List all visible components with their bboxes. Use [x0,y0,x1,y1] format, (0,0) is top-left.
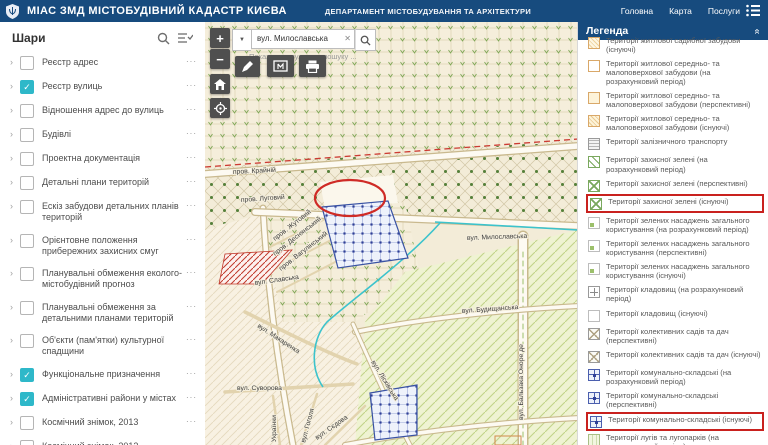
legend-row: Території комунально-складські (на розра… [586,365,764,388]
layer-label: Реєстр вулиць [42,80,186,92]
expand-chevron-icon[interactable]: › [10,234,18,247]
layer-row[interactable]: › Космічний знімок, 2012 ··· [0,435,205,445]
legend-label: Території кладовищ (існуючі) [606,309,708,318]
layer-row[interactable]: › Будівлі ··· [0,123,205,147]
expand-chevron-icon[interactable]: › [10,392,18,405]
layer-options-icon[interactable]: ··· [186,301,197,311]
locate-button[interactable] [210,98,230,118]
expand-chevron-icon[interactable]: › [10,56,18,69]
layer-options-icon[interactable]: ··· [186,152,197,162]
layers-panel: Шари › Реєстр адрес ··· › ✓ Реєстр [0,22,206,445]
printer-icon [305,60,320,73]
pencil-icon [241,60,254,73]
street-label: вул. Бальзака Оноре де [518,344,525,420]
expand-chevron-icon[interactable]: › [10,334,18,347]
layer-checkbox[interactable] [20,334,34,348]
layer-row[interactable]: › Космічний знімок, 2013 ··· [0,411,205,435]
layer-options-icon[interactable]: ··· [186,176,197,186]
home-button[interactable] [210,74,230,94]
layer-options-icon[interactable]: ··· [186,80,197,90]
legend-row: Території кладовищ (існуючі) [586,306,764,324]
layer-checkbox[interactable] [20,104,34,118]
legend-swatch [588,286,600,298]
layer-label: Орієнтовне положення прибережних захисни… [42,234,186,258]
legend-label: Території комунально-складські (на розра… [606,368,762,386]
expand-chevron-icon[interactable]: › [10,267,18,280]
layer-checkbox[interactable] [20,128,34,142]
expand-chevron-icon[interactable]: › [10,368,18,381]
legend-swatch [588,328,600,340]
clear-search-icon[interactable]: ✕ [344,30,351,48]
app-window: МІАС ЗМД МІСТОБУДІВНИЙ КАДАСТР КИЄВА ДЕП… [0,0,768,445]
legend-swatch [588,240,600,252]
layer-row[interactable]: › Планувальні обмеження за детальними пл… [0,296,205,330]
print-button[interactable] [299,55,326,77]
layer-label: Функціональне призначення [42,368,186,380]
expand-chevron-icon[interactable]: › [10,440,18,445]
layer-label: Реєстр адрес [42,56,186,68]
layer-label: Відношення адрес до вулиць [42,104,186,116]
layers-list: › Реєстр адрес ··· › ✓ Реєстр вулиць ···… [0,51,205,445]
zoom-in-button[interactable]: + [210,28,230,48]
legend-row: Території житлової середньо- та малопове… [586,112,764,135]
expand-chevron-icon[interactable]: › [10,301,18,314]
legend-swatch [588,92,600,104]
legend-list: Території житлової садибної забудови (іс… [578,33,768,445]
layer-checkbox[interactable] [20,234,34,248]
legend-label: Території житлової середньо- та малопове… [606,59,762,86]
layers-panel-header: Шари [0,22,205,51]
legend-row: Території комунально-складські (існуючі) [586,412,764,431]
app-title: МІАС ЗМД МІСТОБУДІВНИЙ КАДАСТР КИЄВА [27,5,287,17]
legend-swatch [588,217,600,229]
legend-label: Території колективних садів та дач (існу… [606,350,761,359]
layer-label: Будівлі [42,128,186,140]
legend-label: Території зелених насаджень загального к… [606,216,762,234]
legend-row: Території захисної зелені (на розрахунко… [586,153,764,176]
layer-label: Космічний знімок, 2012 [42,440,186,445]
legend-row: Території комунально-складські (перспект… [586,389,764,412]
layer-row[interactable]: › Відношення адрес до вулиць ··· [0,99,205,123]
top-header: МІАС ЗМД МІСТОБУДІВНИЙ КАДАСТР КИЄВА ДЕП… [0,0,768,22]
street-label: вул. Суворова [237,385,282,392]
layer-options-icon[interactable]: ··· [186,440,197,445]
legend-label: Території житлової середньо- та малопове… [606,91,762,109]
legend-swatch [588,434,600,445]
legend-row: Території колективних садів та дач (існу… [586,347,764,365]
layer-checkbox[interactable] [20,56,34,70]
layer-filter-icon[interactable] [178,32,193,44]
layer-row[interactable]: › ✓ Адміністративні райони у містах ··· [0,387,205,411]
legend-swatch [588,156,600,168]
home-icon [214,79,226,90]
search-icon[interactable] [157,32,170,45]
expand-chevron-icon[interactable]: › [10,80,18,93]
legend-label: Території захисної зелені (на розрахунко… [606,155,762,173]
bookmarks-button[interactable] [267,55,294,77]
layer-row[interactable]: › Об'єкти (пам'ятки) культурної спадщини… [0,329,205,363]
search-submit-button[interactable] [355,29,376,51]
layer-row[interactable]: › Орієнтовне положення прибережних захис… [0,229,205,263]
layer-label: Об'єкти (пам'ятки) культурної спадщини [42,334,186,358]
layer-checkbox[interactable] [20,267,34,281]
layer-options-icon[interactable]: ··· [186,200,197,210]
header-nav: ГоловнаКартаПослуги [621,6,740,16]
collapse-legend-icon[interactable]: « [752,28,763,34]
search-input-value: вул. Милославська [252,30,354,48]
map-search-bar: ▼ вул. Милославська ✕ [232,29,376,51]
layer-checkbox[interactable]: ✓ [20,392,34,406]
layer-row[interactable]: › Планувальні обмеження еколого-містобуд… [0,262,205,296]
legend-label: Території лугів та лугопарків (на розрах… [606,433,762,445]
legend-swatch [590,198,602,210]
layer-options-icon[interactable]: ··· [186,128,197,138]
layer-options-icon[interactable]: ··· [186,56,197,66]
layer-checkbox[interactable] [20,200,34,214]
layer-checkbox[interactable] [20,152,34,166]
layer-checkbox[interactable] [20,176,34,190]
legend-swatch [588,60,600,72]
legend-label: Території комунально-складські (існуючі) [608,415,752,424]
nav-link-0[interactable]: Головна [621,6,653,16]
legend-swatch [588,369,600,381]
legend-row: Території зелених насаджень загального к… [586,213,764,236]
expand-chevron-icon[interactable]: › [10,128,18,141]
nav-link-1[interactable]: Карта [669,6,692,16]
layer-checkbox[interactable]: ✓ [20,368,34,382]
legend-panel: Легенда « Території житлової садибної за… [577,22,768,445]
legend-label: Території житлової садибної забудови (іс… [606,36,762,54]
expand-chevron-icon[interactable]: › [10,416,18,429]
legend-row: Території лугів та лугопарків (на розрах… [586,431,764,445]
search-dropdown-button[interactable]: ▼ [232,29,251,51]
legend-swatch [590,416,602,428]
legend-swatch [588,392,600,404]
locate-icon [214,102,227,115]
kyiv-emblem-logo [6,4,19,19]
layer-row[interactable]: › Ескіз забудови детальних планів терито… [0,195,205,229]
layer-checkbox[interactable] [20,416,34,430]
layer-row[interactable]: › ✓ Функціональне призначення ··· [0,363,205,387]
layer-checkbox[interactable] [20,440,34,445]
layer-label: Детальні плани територій [42,176,186,188]
zoom-out-button[interactable]: − [210,49,230,69]
layer-label: Планувальні обмеження за детальними план… [42,301,186,325]
layer-label: Ескіз забудови детальних планів територі… [42,200,186,224]
expand-chevron-icon[interactable]: › [10,152,18,165]
legend-label: Території комунально-складські (перспект… [606,391,762,409]
legend-swatch [588,351,600,363]
legend-swatch [588,180,600,192]
layer-checkbox[interactable]: ✓ [20,80,34,94]
legend-label: Території захисної зелені (перспективні) [606,179,748,188]
layer-options-icon[interactable]: ··· [186,334,197,344]
layer-row[interactable]: › ✓ Реєстр вулиць ··· [0,75,205,99]
legend-swatch [588,263,600,275]
map-canvas[interactable]: пров. Крайнійпров. Луговийпров. Жутовийп… [205,22,578,445]
legend-row: Території залізничного транспорту [586,135,764,153]
legend-row: Території захисної зелені (перспективні) [586,176,764,194]
layers-title: Шари [12,31,45,45]
street-label: Українки [271,415,278,442]
legend-swatch [588,115,600,127]
layer-options-icon[interactable]: ··· [186,416,197,426]
layer-label: Адміністративні райони у містах [42,392,186,404]
legend-row: Території житлової середньо- та малопове… [586,89,764,112]
search-input[interactable]: вул. Милославська ✕ [251,29,355,49]
legend-row: Території житлової садибної забудови (іс… [586,33,764,56]
magnifier-icon [360,35,371,46]
list-menu-icon[interactable] [746,4,760,17]
legend-row: Території колективних садів та дач (перс… [586,324,764,347]
legend-label: Території зелених насаджень загального к… [606,262,762,280]
measure-button[interactable] [235,56,260,77]
map-viewport[interactable]: пров. Крайнійпров. Луговийпров. Жутовийп… [205,22,578,445]
layer-row[interactable]: › Реєстр адрес ··· [0,51,205,75]
expand-chevron-icon[interactable]: › [10,104,18,117]
legend-label: Території житлової середньо- та малопове… [606,114,762,132]
legend-row: Території захисної зелені (існуючі) [586,194,764,213]
layer-row[interactable]: › Проектна документація ··· [0,147,205,171]
legend-label: Території зелених насаджень загального к… [606,239,762,257]
legend-label: Території захисної зелені (існуючі) [608,197,729,206]
expand-chevron-icon[interactable]: › [10,176,18,189]
layer-checkbox[interactable] [20,301,34,315]
legend-row: Території кладовищ (на розрахунковий пер… [586,283,764,306]
legend-label: Території колективних садів та дач (перс… [606,327,762,345]
nav-link-2[interactable]: Послуги [708,6,740,16]
bookmark-panel-icon [273,60,288,72]
legend-swatch [588,138,600,150]
legend-label: Території кладовищ (на розрахунковий пер… [606,285,762,303]
legend-swatch [588,310,600,322]
layer-options-icon[interactable]: ··· [186,234,197,244]
legend-row: Території зелених насаджень загального к… [586,236,764,259]
layer-options-icon[interactable]: ··· [186,267,197,277]
layer-label: Проектна документація [42,152,186,164]
layer-row[interactable]: › Детальні плани територій ··· [0,171,205,195]
legend-row: Території житлової середньо- та малопове… [586,56,764,88]
department-subtitle: ДЕПАРТАМЕНТ МІСТОБУДУВАННЯ ТА АРХІТЕКТУР… [325,7,531,16]
layer-options-icon[interactable]: ··· [186,104,197,114]
layer-options-icon[interactable]: ··· [186,392,197,402]
layer-options-icon[interactable]: ··· [186,368,197,378]
layer-label: Планувальні обмеження еколого-містобудів… [42,267,186,291]
legend-swatch [588,37,600,49]
expand-chevron-icon[interactable]: › [10,200,18,213]
legend-row: Території зелених насаджень загального к… [586,260,764,283]
layer-label: Космічний знімок, 2013 [42,416,186,428]
legend-label: Території залізничного транспорту [606,137,727,146]
